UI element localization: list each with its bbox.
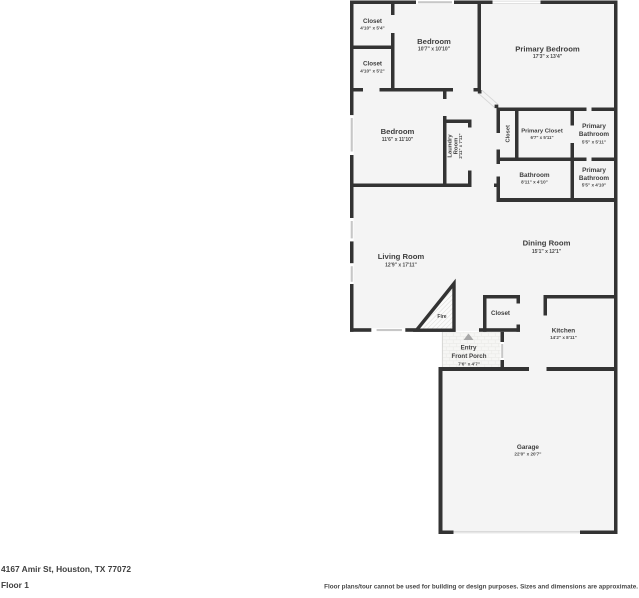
svg-text:12'9" x 17'11": 12'9" x 17'11"	[385, 263, 417, 269]
svg-text:Closet: Closet	[491, 310, 510, 317]
svg-text:Fire: Fire	[437, 314, 446, 320]
svg-text:Dining Room: Dining Room	[523, 239, 571, 248]
svg-text:Closet: Closet	[363, 60, 382, 67]
svg-text:Primary: Primary	[582, 167, 606, 174]
svg-text:2'11" x 7'11": 2'11" x 7'11"	[458, 133, 463, 158]
svg-text:Garage: Garage	[517, 444, 539, 451]
svg-text:Floor 1: Floor 1	[1, 580, 29, 590]
svg-text:Bedroom: Bedroom	[381, 127, 415, 136]
svg-text:6'7" x 5'11": 6'7" x 5'11"	[530, 135, 553, 140]
svg-text:Bathroom: Bathroom	[519, 172, 549, 179]
svg-text:5'5" x 5'11": 5'5" x 5'11"	[582, 140, 606, 145]
svg-text:Closet: Closet	[363, 18, 382, 25]
svg-text:Primary Bedroom: Primary Bedroom	[515, 45, 580, 54]
svg-text:4167 Amir St, Houston, TX 7707: 4167 Amir St, Houston, TX 77072	[1, 564, 131, 574]
svg-text:Entry: Entry	[461, 345, 477, 352]
svg-text:Bedroom: Bedroom	[417, 37, 451, 46]
svg-text:5'5" x 4'10": 5'5" x 4'10"	[582, 183, 606, 188]
svg-text:Floor plans/tour cannot be use: Floor plans/tour cannot be used for buil…	[324, 584, 638, 591]
svg-text:11'6" x 11'10": 11'6" x 11'10"	[382, 137, 414, 143]
svg-text:Bathroom: Bathroom	[579, 175, 609, 182]
svg-text:Bathroom: Bathroom	[579, 131, 609, 138]
svg-text:15'1" x 12'1": 15'1" x 12'1"	[532, 249, 562, 255]
svg-text:4'10" x 5'4": 4'10" x 5'4"	[360, 25, 384, 30]
svg-text:Primary: Primary	[582, 123, 606, 130]
svg-text:Living Room: Living Room	[378, 252, 425, 261]
svg-text:22'0" x 20'7": 22'0" x 20'7"	[514, 452, 541, 457]
svg-text:8'11" x 4'10": 8'11" x 4'10"	[521, 180, 548, 185]
svg-text:Front Porch: Front Porch	[451, 353, 486, 360]
svg-text:14'2" x 8'11": 14'2" x 8'11"	[550, 335, 577, 340]
svg-text:17'3" x 13'4": 17'3" x 13'4"	[533, 54, 563, 60]
svg-text:Primary Closet: Primary Closet	[521, 128, 563, 134]
svg-text:Kitchen: Kitchen	[552, 328, 576, 335]
svg-text:4'10" x 5'2": 4'10" x 5'2"	[360, 68, 384, 73]
svg-text:10'7" x 10'10": 10'7" x 10'10"	[418, 46, 451, 52]
svg-text:Closet: Closet	[506, 125, 512, 142]
svg-text:7'6" x 4'7": 7'6" x 4'7"	[458, 361, 480, 366]
